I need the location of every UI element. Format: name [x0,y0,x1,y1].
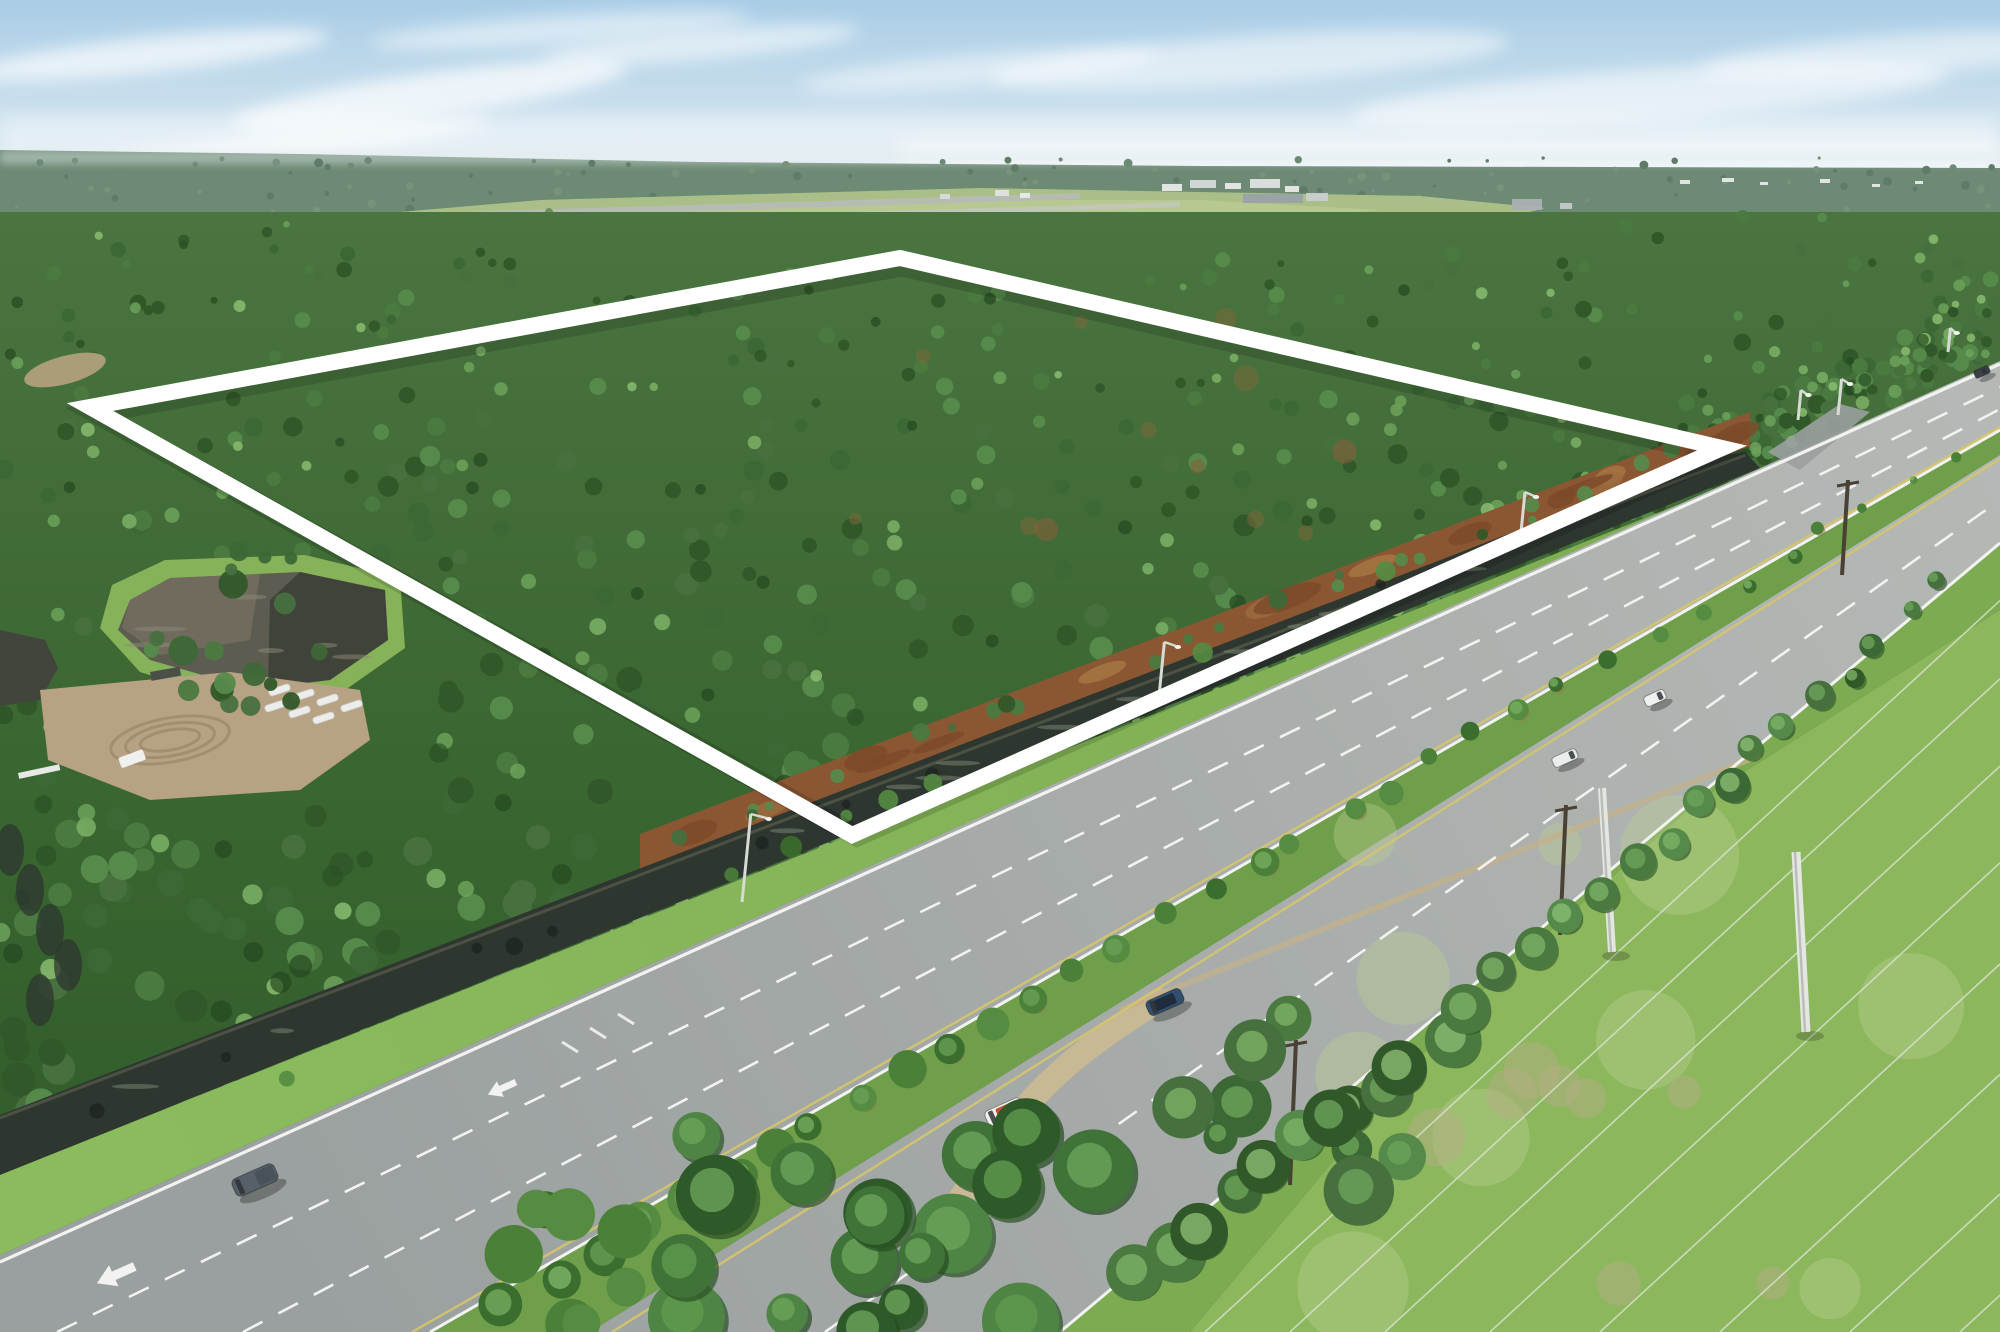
aerial-photo-canvas [0,0,2000,1332]
aerial-photo [0,0,2000,1332]
